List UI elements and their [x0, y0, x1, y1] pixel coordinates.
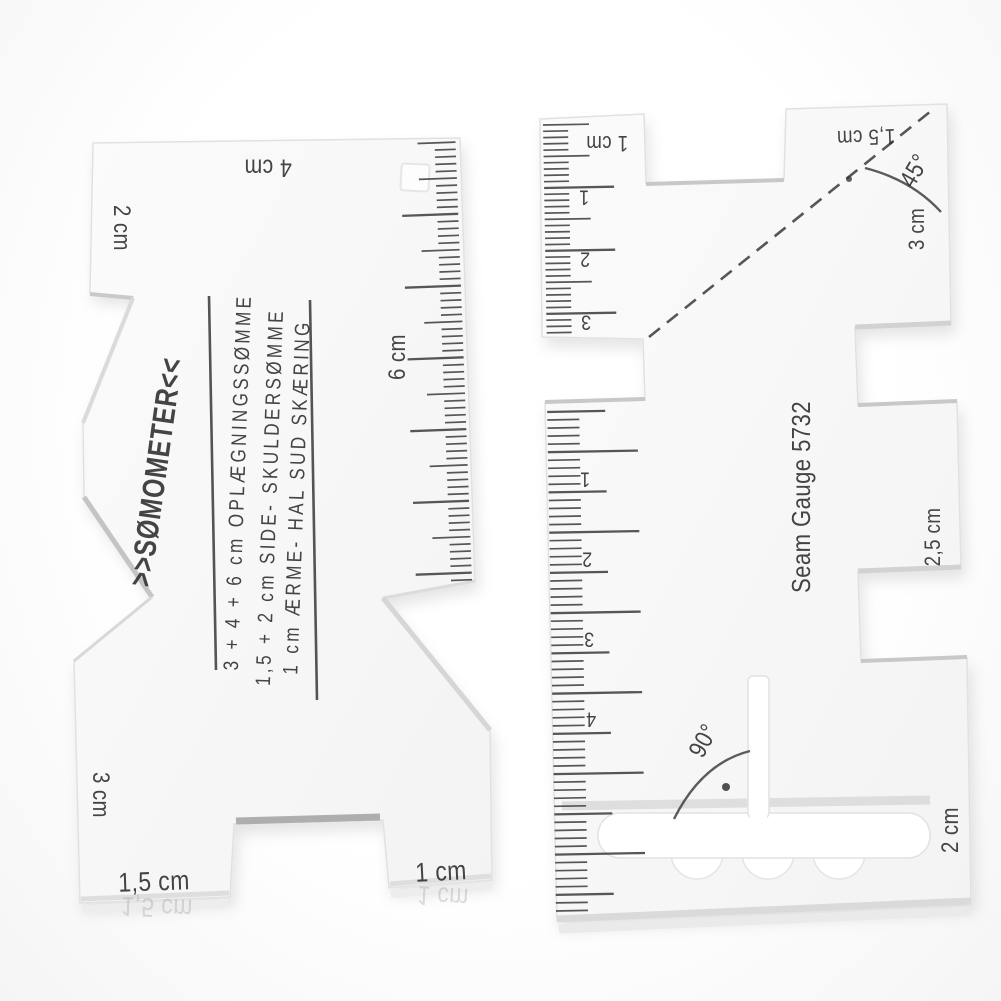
- label-right-2cm: 2 cm: [939, 807, 963, 853]
- dot-90: [722, 783, 730, 791]
- shelf-edge: [562, 800, 930, 806]
- label-1-5cm-reflection: 1,5 cm: [121, 892, 193, 921]
- label-right-1-5cm: 1,5 cm: [836, 125, 895, 149]
- product-photo: 2 cm 4 cm 6 cm 3 cm 1,5 cm 1 cm 1,5 cm 1…: [0, 0, 1001, 1001]
- label-right-2-5cm: 2,5 cm: [922, 508, 944, 567]
- upper-scale-number: 3: [581, 312, 591, 333]
- label-3cm: 3 cm: [88, 772, 112, 818]
- notch-shadow: [236, 817, 380, 821]
- label-1cm-reflection: 1 cm: [417, 881, 470, 911]
- upper-scale-number: 1: [579, 187, 589, 208]
- upper-scale-number: 2: [580, 249, 590, 270]
- label-right-1cm: 1 cm: [586, 132, 628, 154]
- lower-scale-number: 4: [586, 709, 596, 730]
- lower-scale-number: 3: [584, 629, 594, 650]
- label-6cm: 6 cm: [386, 334, 410, 380]
- lower-scale-number: 1: [580, 469, 590, 490]
- square-cutout: [400, 163, 429, 191]
- label-4cm: 4 cm: [244, 155, 292, 180]
- label-2cm: 2 cm: [109, 205, 133, 251]
- label-right-3cm: 3 cm: [906, 208, 928, 250]
- dot-45: [846, 176, 852, 182]
- lower-scale-number: 2: [582, 549, 592, 570]
- model-text: Seam Gauge 5732: [788, 401, 814, 593]
